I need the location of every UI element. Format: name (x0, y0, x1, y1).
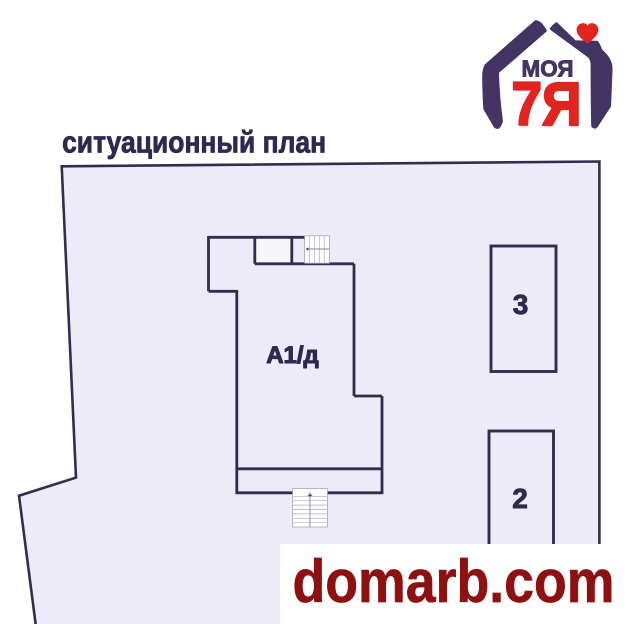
svg-text:domarb.com: domarb.com (293, 548, 615, 615)
svg-text:3: 3 (513, 289, 529, 320)
svg-text:2: 2 (512, 483, 528, 514)
svg-text:ситуационный план: ситуационный план (62, 125, 326, 160)
svg-text:7Я: 7Я (512, 70, 582, 138)
svg-text:А1/д: А1/д (266, 342, 319, 369)
